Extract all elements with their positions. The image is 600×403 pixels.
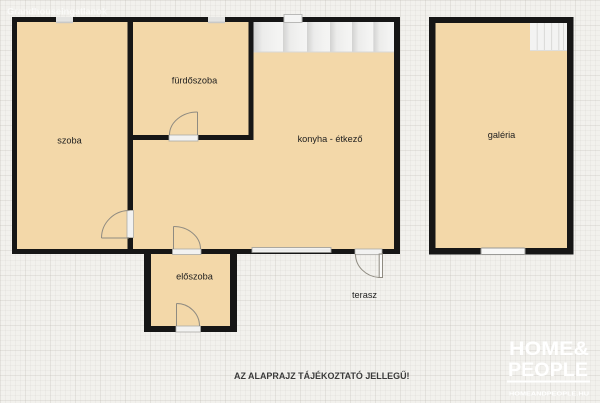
svg-text:galéria: galéria [488,130,516,140]
svg-text:terasz: terasz [352,290,377,300]
svg-text:fürdőszoba: fürdőszoba [172,75,218,85]
svg-text:szoba: szoba [57,135,82,145]
svg-text:AZ ALAPRAJZ TÁJÉKOZTATÓ JELLEG: AZ ALAPRAJZ TÁJÉKOZTATÓ JELLEGŰ! [234,370,410,381]
svg-text:előszoba: előszoba [176,272,214,282]
svg-text:HOMEANDPEOPLE.HU: HOMEANDPEOPLE.HU [509,392,589,398]
svg-text:konyha - étkező: konyha - étkező [298,134,363,144]
svg-text:PEOPLE: PEOPLE [508,360,588,381]
svg-text:HOME&: HOME& [509,339,589,360]
svg-text:Grandhouseingatlanok: Grandhouseingatlanok [7,7,108,18]
